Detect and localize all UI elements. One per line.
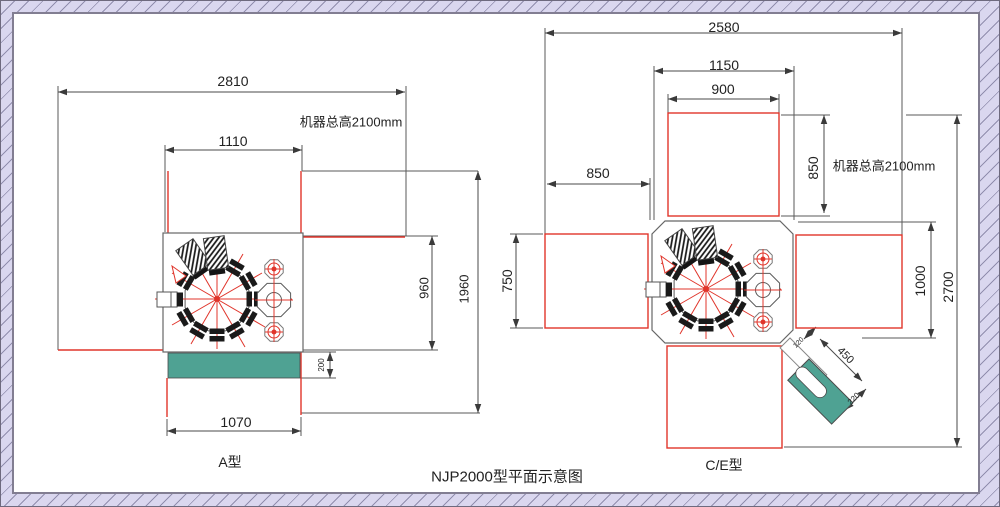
dim-a-body-width: 1110 — [218, 134, 247, 148]
dim-ce-hopper-width: 900 — [711, 82, 734, 96]
dim-ce-right-depth: 1000 — [913, 265, 927, 296]
plan-drawing-sheet: 2810 1110 机器总高2100mm 960 1960 200 1070 A… — [0, 0, 1000, 507]
dim-ce-total-width: 2580 — [708, 20, 739, 34]
note-a-height: 机器总高2100mm — [300, 116, 403, 129]
dim-a-outfeed-width: 1070 — [220, 415, 251, 429]
drawing-title: NJP2000型平面示意图 — [431, 470, 583, 485]
dim-a-right-depth: 960 — [418, 277, 431, 299]
dim-a-total-depth: 1960 — [458, 275, 471, 304]
dim-ce-left-depth: 750 — [500, 269, 514, 292]
label-type-a: A型 — [218, 455, 241, 469]
label-type-ce: C/E型 — [705, 458, 742, 472]
dim-ce-top-depth: 850 — [806, 156, 820, 179]
note-ce-height: 机器总高2100mm — [833, 160, 936, 173]
dim-ce-total-depth: 2700 — [941, 271, 955, 302]
outfeed-table-a — [168, 353, 300, 378]
dim-ce-left-clearance: 850 — [586, 166, 609, 180]
dim-a-belt-depth: 200 — [318, 358, 326, 371]
plan-linework — [0, 0, 1000, 507]
dim-a-total-width: 2810 — [217, 74, 248, 88]
dim-ce-body-width: 1150 — [709, 58, 739, 72]
